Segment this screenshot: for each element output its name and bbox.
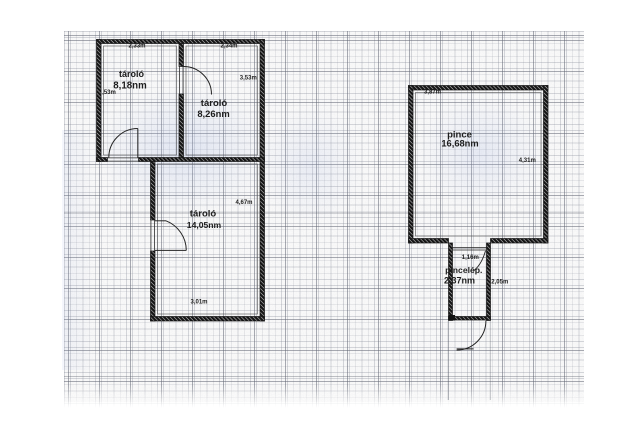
svg-text:8,18nm: 8,18nm (113, 80, 147, 91)
svg-text:16,68nm: 16,68nm (441, 139, 478, 149)
svg-text:3,53m: 3,53m (240, 76, 257, 82)
svg-text:tároló: tároló (190, 209, 217, 220)
svg-text:3,01m: 3,01m (190, 300, 207, 306)
svg-text:4,31m: 4,31m (519, 158, 536, 164)
svg-text:14,05nm: 14,05nm (187, 220, 222, 230)
svg-text:2,37nm: 2,37nm (444, 275, 475, 285)
svg-text:3,87m: 3,87m (424, 90, 441, 96)
svg-text:1,16m: 1,16m (462, 255, 479, 261)
svg-text:4,67m: 4,67m (235, 200, 252, 206)
svg-text:2,33m: 2,33m (128, 44, 145, 50)
svg-text:tároló: tároló (119, 69, 145, 79)
svg-text:8,26nm: 8,26nm (197, 108, 229, 119)
svg-text:pincelép.: pincelép. (445, 265, 482, 275)
svg-text:2,34m: 2,34m (220, 44, 237, 50)
svg-text:,53m: ,53m (102, 90, 116, 96)
svg-text:2,05m: 2,05m (491, 280, 508, 286)
